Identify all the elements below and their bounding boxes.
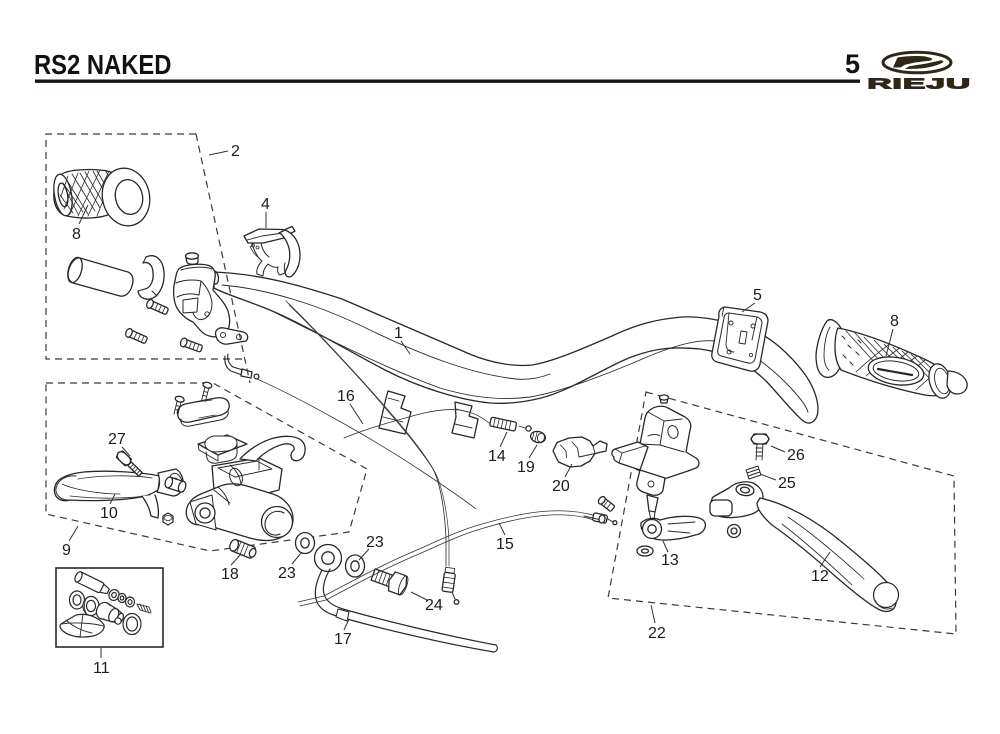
svg-text:11: 11 xyxy=(93,660,110,677)
svg-text:10: 10 xyxy=(100,505,118,522)
svg-text:1: 1 xyxy=(394,325,403,342)
svg-text:23: 23 xyxy=(278,565,296,582)
svg-text:20: 20 xyxy=(552,478,570,495)
svg-text:13: 13 xyxy=(661,552,679,569)
svg-text:18: 18 xyxy=(221,566,239,583)
svg-text:22: 22 xyxy=(648,625,666,642)
svg-text:14: 14 xyxy=(488,448,506,465)
svg-text:5: 5 xyxy=(845,49,860,79)
svg-text:4: 4 xyxy=(261,196,270,213)
svg-text:17: 17 xyxy=(334,631,352,648)
svg-text:5: 5 xyxy=(753,287,762,304)
svg-text:12: 12 xyxy=(811,568,829,585)
svg-text:8: 8 xyxy=(890,313,899,330)
svg-text:24: 24 xyxy=(425,597,443,614)
svg-text:2: 2 xyxy=(231,143,240,160)
svg-text:23: 23 xyxy=(366,534,384,551)
svg-text:27: 27 xyxy=(108,431,126,448)
svg-text:26: 26 xyxy=(787,447,805,464)
svg-text:25: 25 xyxy=(778,475,796,492)
svg-text:RS2 NAKED: RS2 NAKED xyxy=(34,48,171,80)
svg-text:9: 9 xyxy=(62,542,71,559)
svg-text:16: 16 xyxy=(337,388,355,405)
svg-text:15: 15 xyxy=(496,536,514,553)
svg-text:19: 19 xyxy=(517,459,535,476)
svg-text:RIEJU: RIEJU xyxy=(867,76,971,92)
svg-text:8: 8 xyxy=(72,226,81,243)
